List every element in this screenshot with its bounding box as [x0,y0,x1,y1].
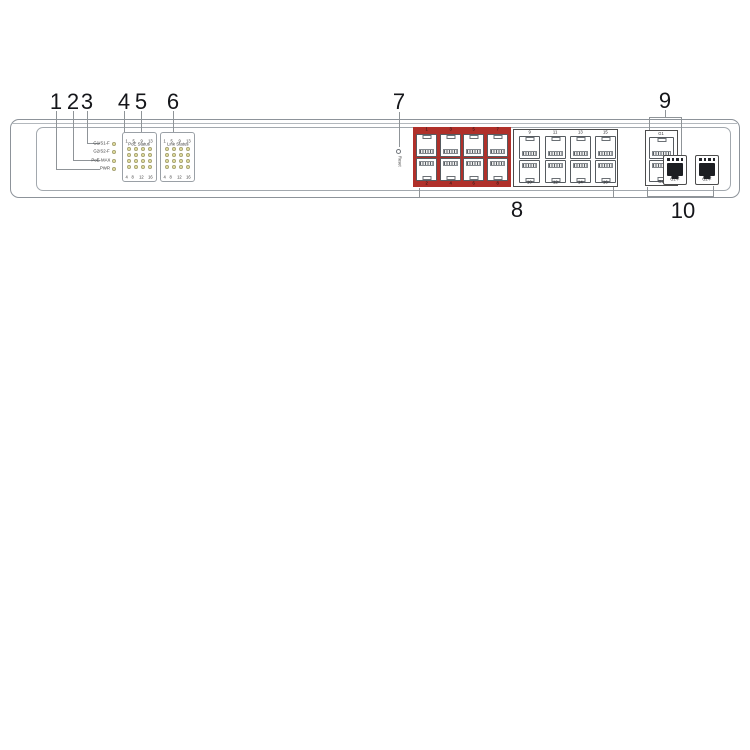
callout-line-9 [649,117,682,118]
g1s1f-led [112,142,116,146]
rj45-port-11 [545,136,566,159]
led [165,165,169,169]
led [127,159,131,163]
reset-label: Reset [397,156,401,167]
port-number: 8 [487,181,508,187]
callout-line-9 [681,117,682,155]
led [148,165,152,169]
g2s2f-led [112,150,116,154]
callout-3: 3 [74,92,100,112]
led [179,165,183,169]
led [141,153,145,157]
led [179,159,183,163]
callout-line-7 [399,112,400,147]
callout-line-10 [647,187,648,196]
led [134,153,138,157]
port-number: 14 [570,180,591,186]
led-label-pwr: PWR [100,167,110,171]
led [172,165,176,169]
sfp-slot-g1f: G1-F [663,155,687,185]
led [127,147,131,151]
callout-line-9 [649,117,650,130]
callout-8: 8 [504,200,530,220]
link-status-led-block: Link Status 15913 481216 [160,132,195,182]
port-number: 1 [416,127,437,133]
led [165,159,169,163]
port-number: 3 [440,127,461,133]
led [148,159,152,163]
led [172,147,176,151]
rj45-port-8 [487,158,508,181]
reset-button [396,149,401,154]
callout-line-8 [419,188,420,197]
sfp-slot-g2f: G2-F [695,155,719,185]
led-block-top-numbers: 15913 [163,139,192,145]
callout-line-10 [647,196,714,197]
poe-status-led-block: PoE Status 15913 481216 [122,132,157,182]
led-block-top-numbers: 15913 [125,139,154,145]
callout-line-10 [713,186,714,196]
led [148,153,152,157]
port-number: 2 [416,181,437,187]
led [134,165,138,169]
rj45-port-5 [463,134,484,157]
sfp-vents [699,158,715,161]
led [141,165,145,169]
rj45-port-1 [416,134,437,157]
led [186,147,190,151]
port-number: 6 [463,181,484,187]
rj45-port-2 [416,158,437,181]
chassis-seam-line [11,123,737,124]
link-status-led-grid [164,146,191,170]
callout-5: 5 [128,92,154,112]
rj45-port-9 [519,136,540,159]
sfp-cage-opening [667,163,683,176]
callout-9: 9 [652,91,678,111]
led-block-bottom-numbers: 481216 [125,175,154,181]
led [134,159,138,163]
led [127,165,131,169]
rj45-port-15 [595,136,616,159]
led [127,153,131,157]
led [172,159,176,163]
led [134,147,138,151]
led [186,153,190,157]
sfp-g2f-label: G2-F [696,177,718,183]
led-row-pwr: PWR [62,166,116,173]
led [186,165,190,169]
led-row-g2s2f: G2/S2-F [62,149,116,156]
led-label-g1s1f: G1/S1-F [94,141,110,145]
port-number: 5 [463,127,484,133]
callout-line-8 [419,197,614,198]
led [172,153,176,157]
rj45-port-13 [570,136,591,159]
callout-line-8 [613,187,614,197]
rj45-port-3 [440,134,461,157]
led [165,147,169,151]
sfp-g1f-label: G1-F [664,177,686,183]
led [186,159,190,163]
led-label-poemax: PoE-MAX [91,158,110,162]
led [165,153,169,157]
led-block-bottom-numbers: 481216 [163,175,192,181]
port-number: 4 [440,181,461,187]
led [141,159,145,163]
poe-status-led-grid [126,146,153,170]
rj45-port-6 [463,158,484,181]
callout-7: 7 [386,92,412,112]
led [141,147,145,151]
sfp-cage-opening [699,163,715,176]
power-led [112,167,116,171]
led [179,153,183,157]
rj45-port-4 [440,158,461,181]
poe-max-led [112,159,116,163]
port-number: 7 [487,127,508,133]
led-row-g1s1f: G1/S1-F [62,140,116,147]
rj45-port-7 [487,134,508,157]
led-row-poemax: PoE-MAX [62,157,116,164]
led-label-g2s2f: G2/S2-F [94,150,110,154]
callout-6: 6 [160,92,186,112]
sfp-vents [667,158,683,161]
callout-line-1 [56,111,57,169]
port-number: 12 [545,180,566,186]
port-number: 10 [519,180,540,186]
port-group-9-16: 9 11 13 15 10 12 14 16 [513,129,618,187]
switch-front-panel-diagram: 1 2 3 4 5 6 7 9 8 10 G1/S1-F G2/S2-F PoE… [0,0,750,750]
callout-line-6 [173,111,174,134]
port-number: 16 [595,180,616,186]
led [148,147,152,151]
port-group-1-8-highlighted: 1 3 5 7 2 4 6 8 [413,127,511,187]
callout-10: 10 [670,201,696,221]
led [179,147,183,151]
callout-line-5 [141,111,142,134]
